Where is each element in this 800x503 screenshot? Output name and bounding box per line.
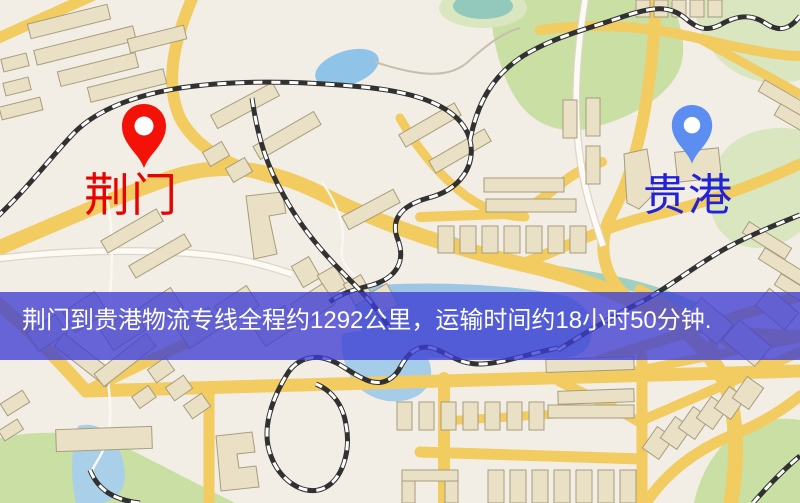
map-canvas <box>0 0 800 503</box>
route-info-banner: 荆门到贵港物流专线全程约1292公里，运输时间约18小时50分钟. <box>0 292 800 360</box>
map-screenshot: 荆门 贵港 荆门到贵港物流专线全程约1292公里，运输时间约18小时50分钟. <box>0 0 800 503</box>
destination-marker-pin-icon <box>670 101 714 164</box>
route-info-text: 荆门到贵港物流专线全程约1292公里，运输时间约18小时50分钟. <box>22 307 711 336</box>
origin-label: 荆门 <box>84 172 178 218</box>
origin-marker-pin-icon <box>120 100 168 168</box>
destination-label: 贵港 <box>643 174 733 218</box>
